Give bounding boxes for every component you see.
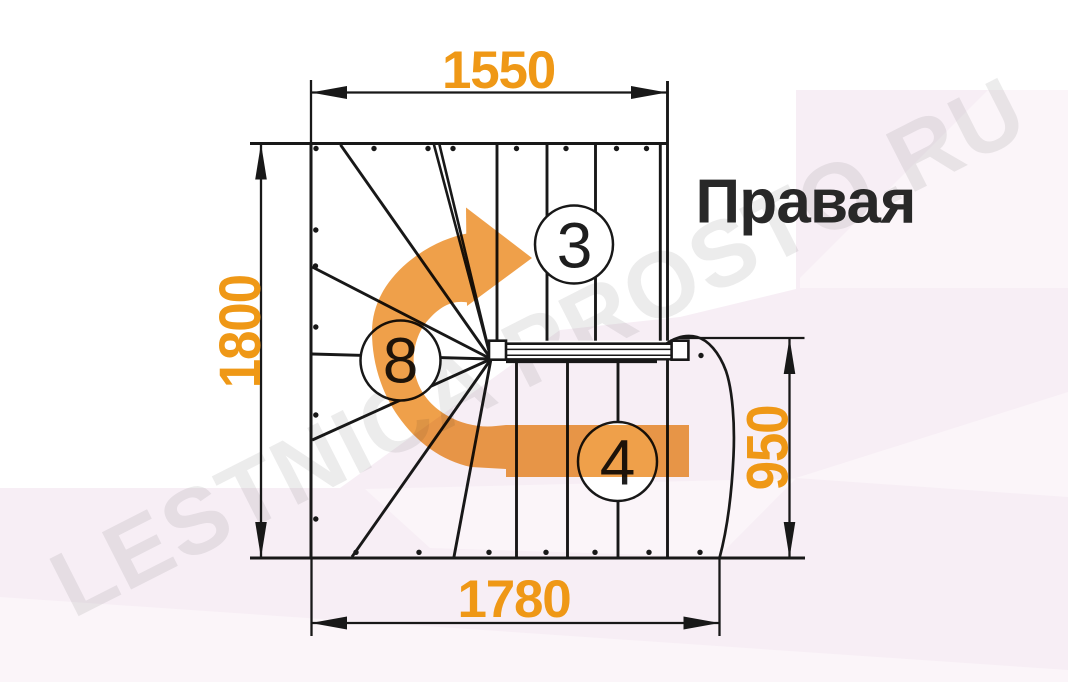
- svg-text:1780: 1780: [457, 570, 570, 629]
- svg-text:1800: 1800: [207, 275, 272, 388]
- svg-text:Правая: Правая: [696, 168, 916, 237]
- svg-text:950: 950: [735, 406, 800, 491]
- svg-text:1550: 1550: [442, 41, 555, 100]
- svg-text:3: 3: [557, 210, 593, 282]
